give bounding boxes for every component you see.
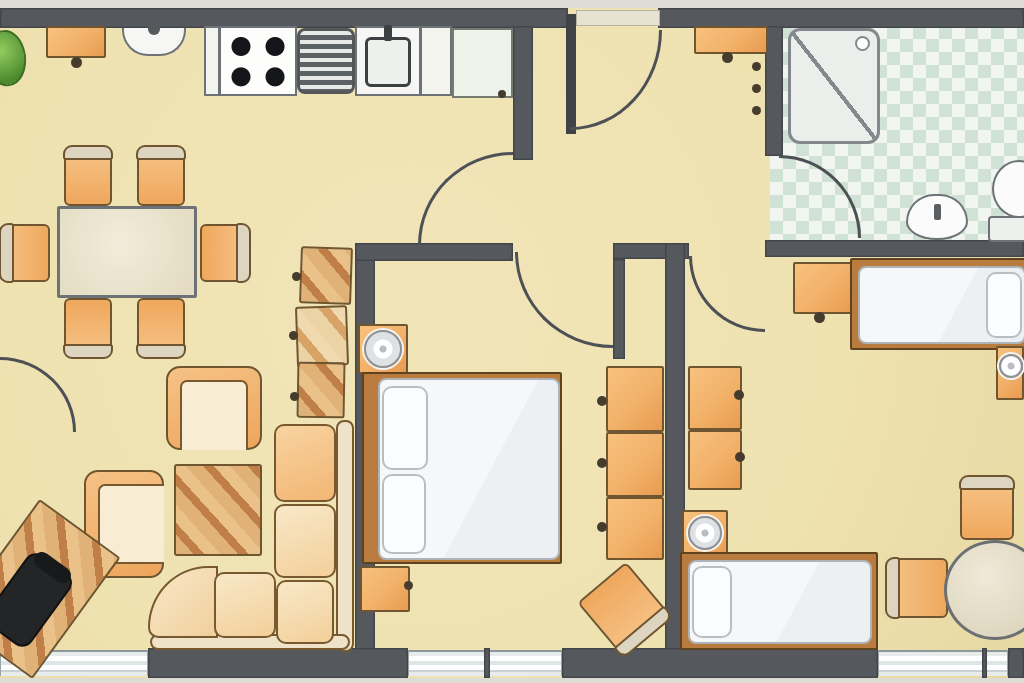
bottom-wall-2 — [562, 648, 878, 678]
dining-chair-2 — [137, 148, 185, 206]
wardrobe-1-knob-c — [597, 522, 607, 532]
coat-hook-2 — [752, 84, 761, 93]
outside-strip-top — [0, 0, 1024, 8]
shelf-knob-1 — [292, 272, 301, 281]
washbasin — [906, 194, 968, 240]
armchair-1 — [166, 366, 262, 450]
dining-chair-6 — [137, 298, 185, 356]
nightstand-2-knob — [404, 581, 413, 590]
fridge-knob — [498, 90, 506, 98]
sofa-back-vertical — [336, 420, 354, 652]
dining-chair-4 — [200, 224, 248, 282]
kitchen-counter-2 — [420, 26, 452, 96]
lamp-3 — [688, 516, 722, 550]
toilet-tank — [988, 216, 1024, 242]
coffee-table — [174, 464, 262, 556]
wardrobe-1c — [606, 497, 664, 560]
window-right — [878, 650, 1008, 676]
coat-shelf — [694, 26, 768, 54]
floor-plan — [0, 0, 1024, 683]
coat-hook-3 — [752, 106, 761, 115]
coat-shelf-knob — [722, 52, 733, 63]
kitchen-wall-shelf — [46, 26, 106, 58]
sofa-cushion-4 — [214, 572, 276, 638]
stove — [219, 26, 297, 96]
shelf-unit-1 — [299, 246, 353, 305]
pillow-2 — [382, 474, 426, 554]
wardrobe-1b — [606, 432, 664, 497]
kitchen-shelf-knob — [71, 57, 82, 68]
dining-chair-5 — [64, 298, 112, 356]
bedroom2-chair-1 — [888, 558, 948, 618]
lamp-2 — [999, 354, 1023, 378]
dining-chair-3 — [2, 224, 50, 282]
single-bed-2-pillow — [692, 566, 732, 638]
shelf-knob-3 — [290, 392, 299, 401]
top-wall-left — [0, 8, 568, 28]
bedroom1-top-wall — [355, 243, 513, 261]
kitchen-sink — [355, 26, 421, 96]
sofa-cushion-2 — [274, 504, 336, 578]
shelf-unit-3 — [297, 362, 346, 419]
bedroom2-desk — [793, 262, 853, 314]
bottom-wall-1 — [148, 648, 408, 678]
wardrobe-1a — [606, 366, 664, 432]
drainboard — [297, 28, 355, 94]
window-mullion-mid — [484, 648, 490, 678]
sofa-cushion-3 — [276, 580, 334, 644]
niche-left-wall — [613, 259, 625, 359]
top-wall-right — [658, 8, 1024, 28]
pillow-1 — [382, 386, 428, 470]
bedroom2-chair-2 — [960, 478, 1014, 540]
shelf-unit-2 — [295, 305, 349, 367]
dining-chair-1 — [64, 148, 112, 206]
coat-hook-1 — [752, 62, 761, 71]
wardrobe-1-knob-a — [597, 396, 607, 406]
outside-strip-bottom — [0, 678, 1024, 683]
lamp-1 — [364, 330, 402, 368]
nightstand-2 — [360, 566, 410, 612]
wardrobe-2b — [688, 430, 742, 490]
wardrobe-1-knob-b — [597, 458, 607, 468]
window-mullion-right — [982, 648, 987, 678]
single-bed-1-pillow — [986, 272, 1022, 338]
wardrobe-2a — [688, 366, 742, 430]
bedroom2-desk-knob — [814, 312, 825, 323]
shelf-knob-2 — [289, 331, 298, 340]
kitchen-wall-stub — [513, 26, 533, 160]
wardrobe-2-knob-a — [734, 390, 744, 400]
shower-stall — [788, 28, 880, 144]
kitchen-counter-1 — [204, 26, 220, 96]
bottom-wall-3 — [1008, 648, 1024, 678]
bath-bottom-wall — [765, 240, 1024, 257]
dining-table — [57, 206, 197, 298]
entrance-threshold — [576, 10, 660, 26]
fridge — [452, 28, 513, 98]
wardrobe-2-knob-b — [735, 452, 745, 462]
sofa-cushion-1 — [274, 424, 336, 502]
